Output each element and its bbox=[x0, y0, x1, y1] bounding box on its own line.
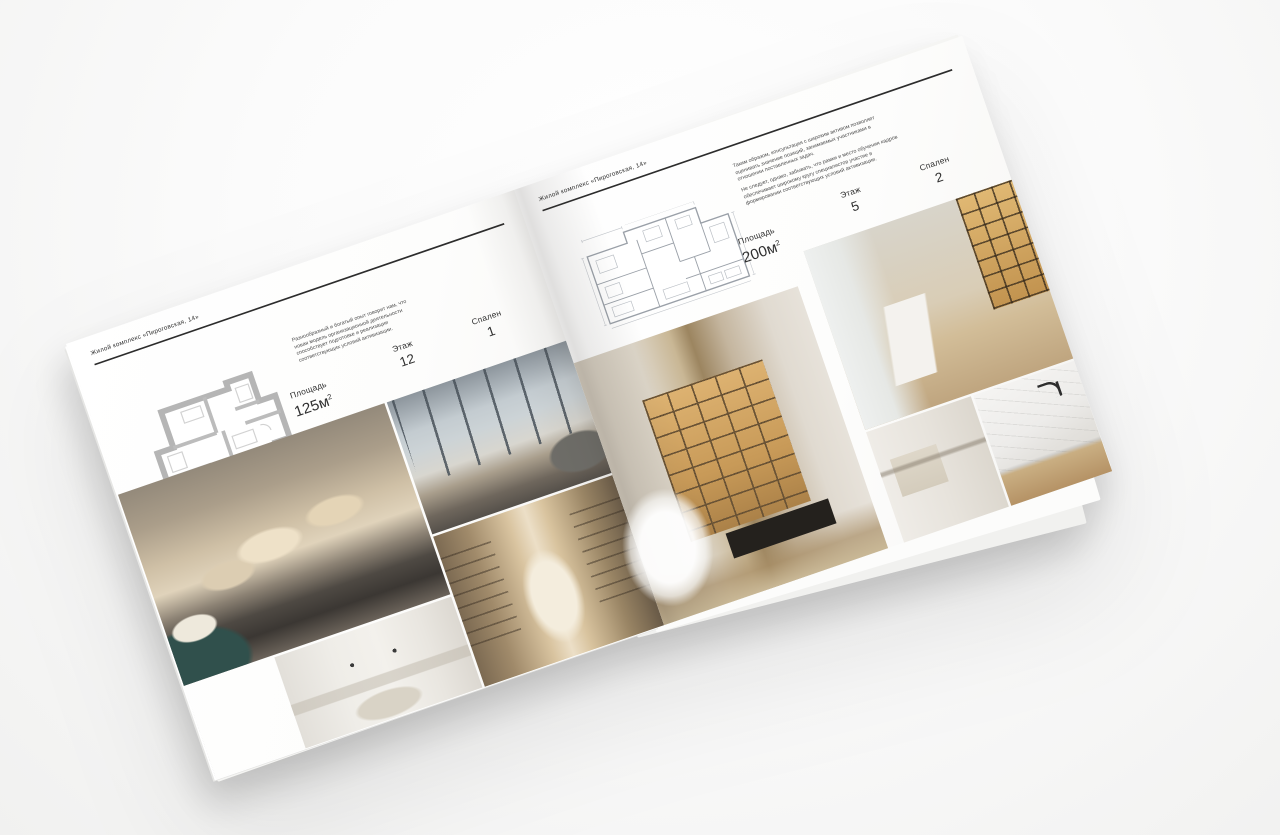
faucet-icon bbox=[1037, 379, 1063, 402]
scene-background: Жилой комплекс «Пироговская, 14» Разнооб… bbox=[0, 0, 1280, 835]
brochure-mockup: Жилой комплекс «Пироговская, 14» Разнооб… bbox=[0, 0, 1280, 835]
page-title: Жилой комплекс «Пироговская, 14» bbox=[89, 209, 501, 357]
open-brochure-spread: Жилой комплекс «Пироговская, 14» Разнооб… bbox=[66, 36, 1112, 779]
floor-stat: Этаж 5 bbox=[828, 181, 880, 221]
floor-stat: Этаж 12 bbox=[380, 335, 432, 375]
area-stat: Площадь 125м2 bbox=[279, 377, 345, 424]
bedrooms-stat: Спален 2 bbox=[911, 152, 965, 193]
bedrooms-stat: Спален 1 bbox=[463, 306, 517, 347]
